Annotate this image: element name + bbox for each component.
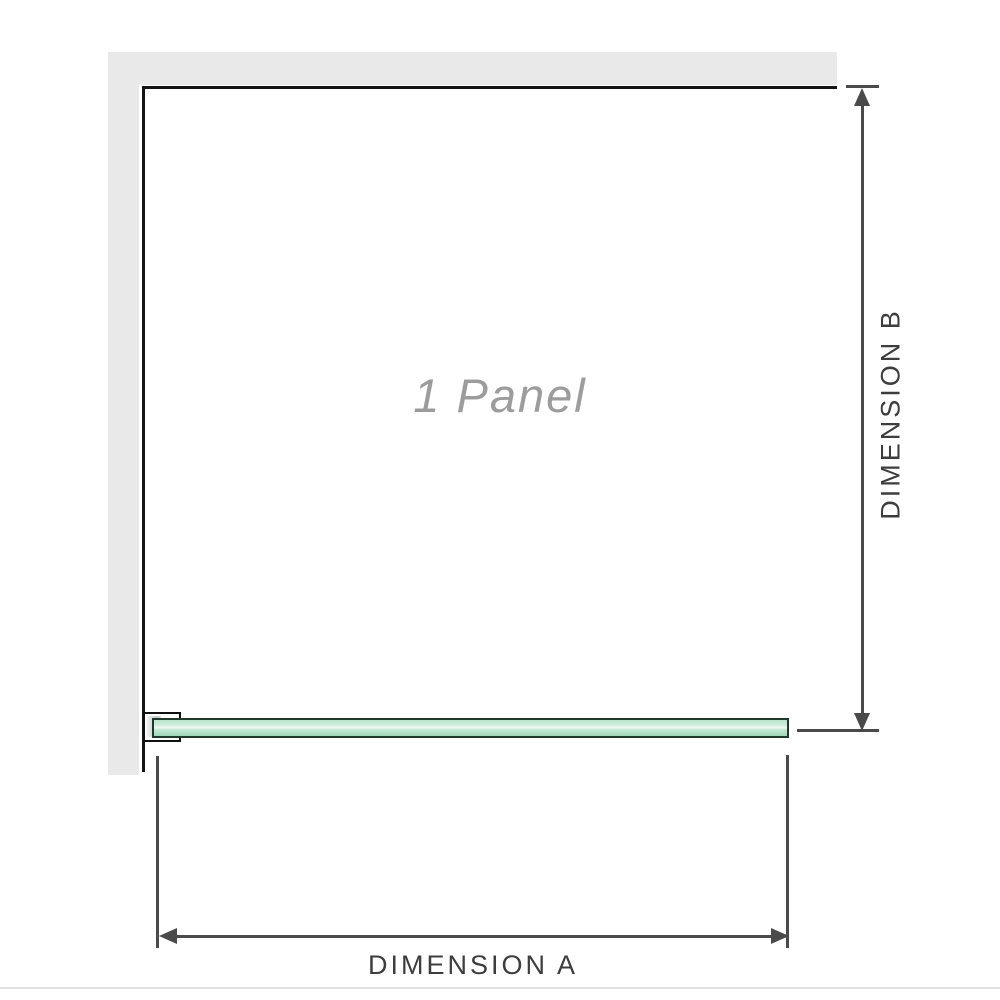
dimension-a-right-extension-line — [786, 755, 789, 948]
panel-outline-left — [142, 86, 145, 772]
page-divider — [0, 987, 1000, 989]
dimension-b-arrow-down-icon — [854, 713, 870, 731]
dimension-a-line — [175, 935, 772, 938]
panel-count-label: 1 Panel — [300, 368, 700, 423]
wall-top-segment — [108, 52, 837, 85]
panel-outline-top — [142, 86, 837, 89]
wall-left-segment — [108, 52, 139, 775]
glass-panel — [152, 718, 789, 738]
dimension-a-left-extension-line — [156, 756, 159, 948]
dimension-a-arrow-right-icon — [771, 928, 789, 944]
panel-dimension-diagram: 1 Panel DIMENSION B DIMENSION A — [0, 0, 1000, 1000]
dimension-b-label: DIMENSION B — [876, 308, 907, 520]
dimension-b-line — [861, 102, 864, 716]
dimension-a-label: DIMENSION A — [273, 950, 673, 981]
dimension-a-arrow-left-icon — [159, 928, 177, 944]
dimension-b-arrow-up-icon — [854, 88, 870, 106]
